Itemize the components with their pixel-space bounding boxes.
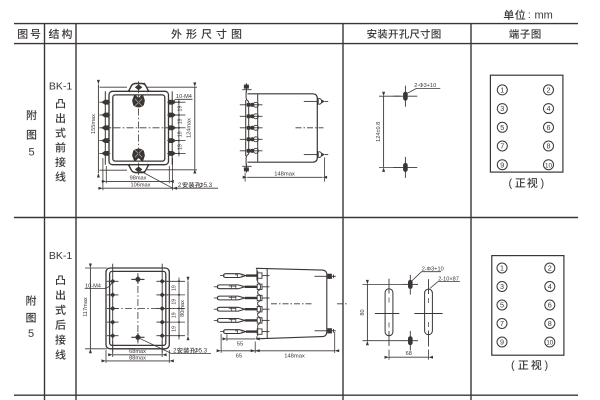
svg-text:148max: 148max <box>284 354 305 360</box>
svg-text:1: 1 <box>500 264 504 273</box>
svg-text:124±0.8: 124±0.8 <box>376 122 382 142</box>
svg-text:19: 19 <box>177 131 183 137</box>
svg-text:mm: mm <box>535 10 553 22</box>
svg-text:7: 7 <box>500 142 504 151</box>
svg-text:5: 5 <box>28 147 34 159</box>
svg-text:5: 5 <box>28 328 34 340</box>
svg-text:(: ( <box>508 177 512 189</box>
svg-text:124max: 124max <box>186 118 192 138</box>
svg-text:106max: 106max <box>131 182 151 188</box>
svg-text:68max: 68max <box>129 349 146 355</box>
svg-text:2-Φ3+10: 2-Φ3+10 <box>422 267 444 273</box>
svg-text:4: 4 <box>548 282 552 291</box>
svg-text:): ) <box>540 177 544 189</box>
svg-text:88max: 88max <box>129 355 146 361</box>
svg-text:6: 6 <box>548 301 552 310</box>
svg-text:2: 2 <box>548 264 552 273</box>
svg-text:19: 19 <box>177 118 183 124</box>
svg-text:19: 19 <box>172 285 178 291</box>
svg-text:19: 19 <box>177 144 183 150</box>
svg-text:98max: 98max <box>130 176 147 182</box>
svg-text:): ) <box>544 359 548 371</box>
svg-text:19: 19 <box>172 326 178 332</box>
svg-text:117max: 117max <box>83 297 89 317</box>
svg-text:6: 6 <box>547 123 551 132</box>
svg-text:8: 8 <box>548 319 552 328</box>
svg-text:19: 19 <box>172 299 178 305</box>
svg-text:65: 65 <box>236 354 242 360</box>
svg-text:(: ( <box>511 359 515 371</box>
svg-text:5: 5 <box>500 123 504 132</box>
svg-text:10: 10 <box>546 340 553 347</box>
svg-text:55: 55 <box>237 342 243 348</box>
svg-text:19: 19 <box>177 106 183 112</box>
svg-text:7: 7 <box>500 319 504 328</box>
svg-text:8: 8 <box>547 142 551 151</box>
svg-text:10: 10 <box>545 162 552 169</box>
svg-text:Φ5.3: Φ5.3 <box>194 349 208 355</box>
svg-text:2-Φ3+10: 2-Φ3+10 <box>414 83 436 89</box>
svg-text:BK-1: BK-1 <box>49 81 73 93</box>
svg-text:5: 5 <box>500 301 504 310</box>
svg-text:9: 9 <box>500 160 504 169</box>
svg-text:3: 3 <box>500 104 504 113</box>
svg-text:9: 9 <box>500 338 504 347</box>
svg-text:155max: 155max <box>91 114 97 134</box>
svg-text:3: 3 <box>500 282 504 291</box>
svg-text:2: 2 <box>547 86 551 95</box>
svg-text:148max: 148max <box>274 171 295 177</box>
svg-text:1: 1 <box>500 86 504 95</box>
svg-text:4: 4 <box>547 104 551 113</box>
svg-text::: : <box>528 9 531 21</box>
svg-text:19: 19 <box>172 312 178 318</box>
svg-text:BK-1: BK-1 <box>49 250 73 262</box>
svg-text:2-10×87: 2-10×87 <box>438 276 459 282</box>
svg-text:68: 68 <box>406 351 412 357</box>
svg-text:80: 80 <box>360 309 366 315</box>
svg-text:80max: 80max <box>180 300 186 317</box>
svg-text:Φ5.3: Φ5.3 <box>199 183 213 189</box>
